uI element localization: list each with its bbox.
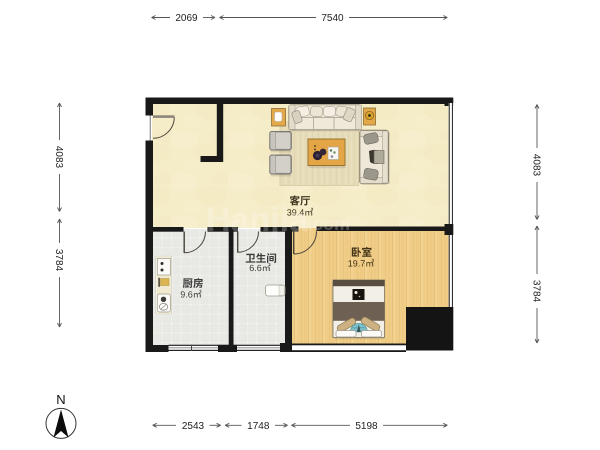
svg-text:7540: 7540 bbox=[321, 13, 344, 24]
svg-text:4083: 4083 bbox=[53, 146, 64, 169]
svg-text:2543: 2543 bbox=[182, 421, 205, 432]
svg-text:4083: 4083 bbox=[531, 154, 542, 177]
svg-text:1748: 1748 bbox=[247, 421, 270, 432]
svg-text:5198: 5198 bbox=[355, 421, 378, 432]
svg-text:N: N bbox=[56, 392, 65, 407]
svg-text:3784: 3784 bbox=[53, 249, 64, 272]
svg-text:2069: 2069 bbox=[175, 13, 198, 24]
svg-text:3784: 3784 bbox=[531, 280, 542, 303]
